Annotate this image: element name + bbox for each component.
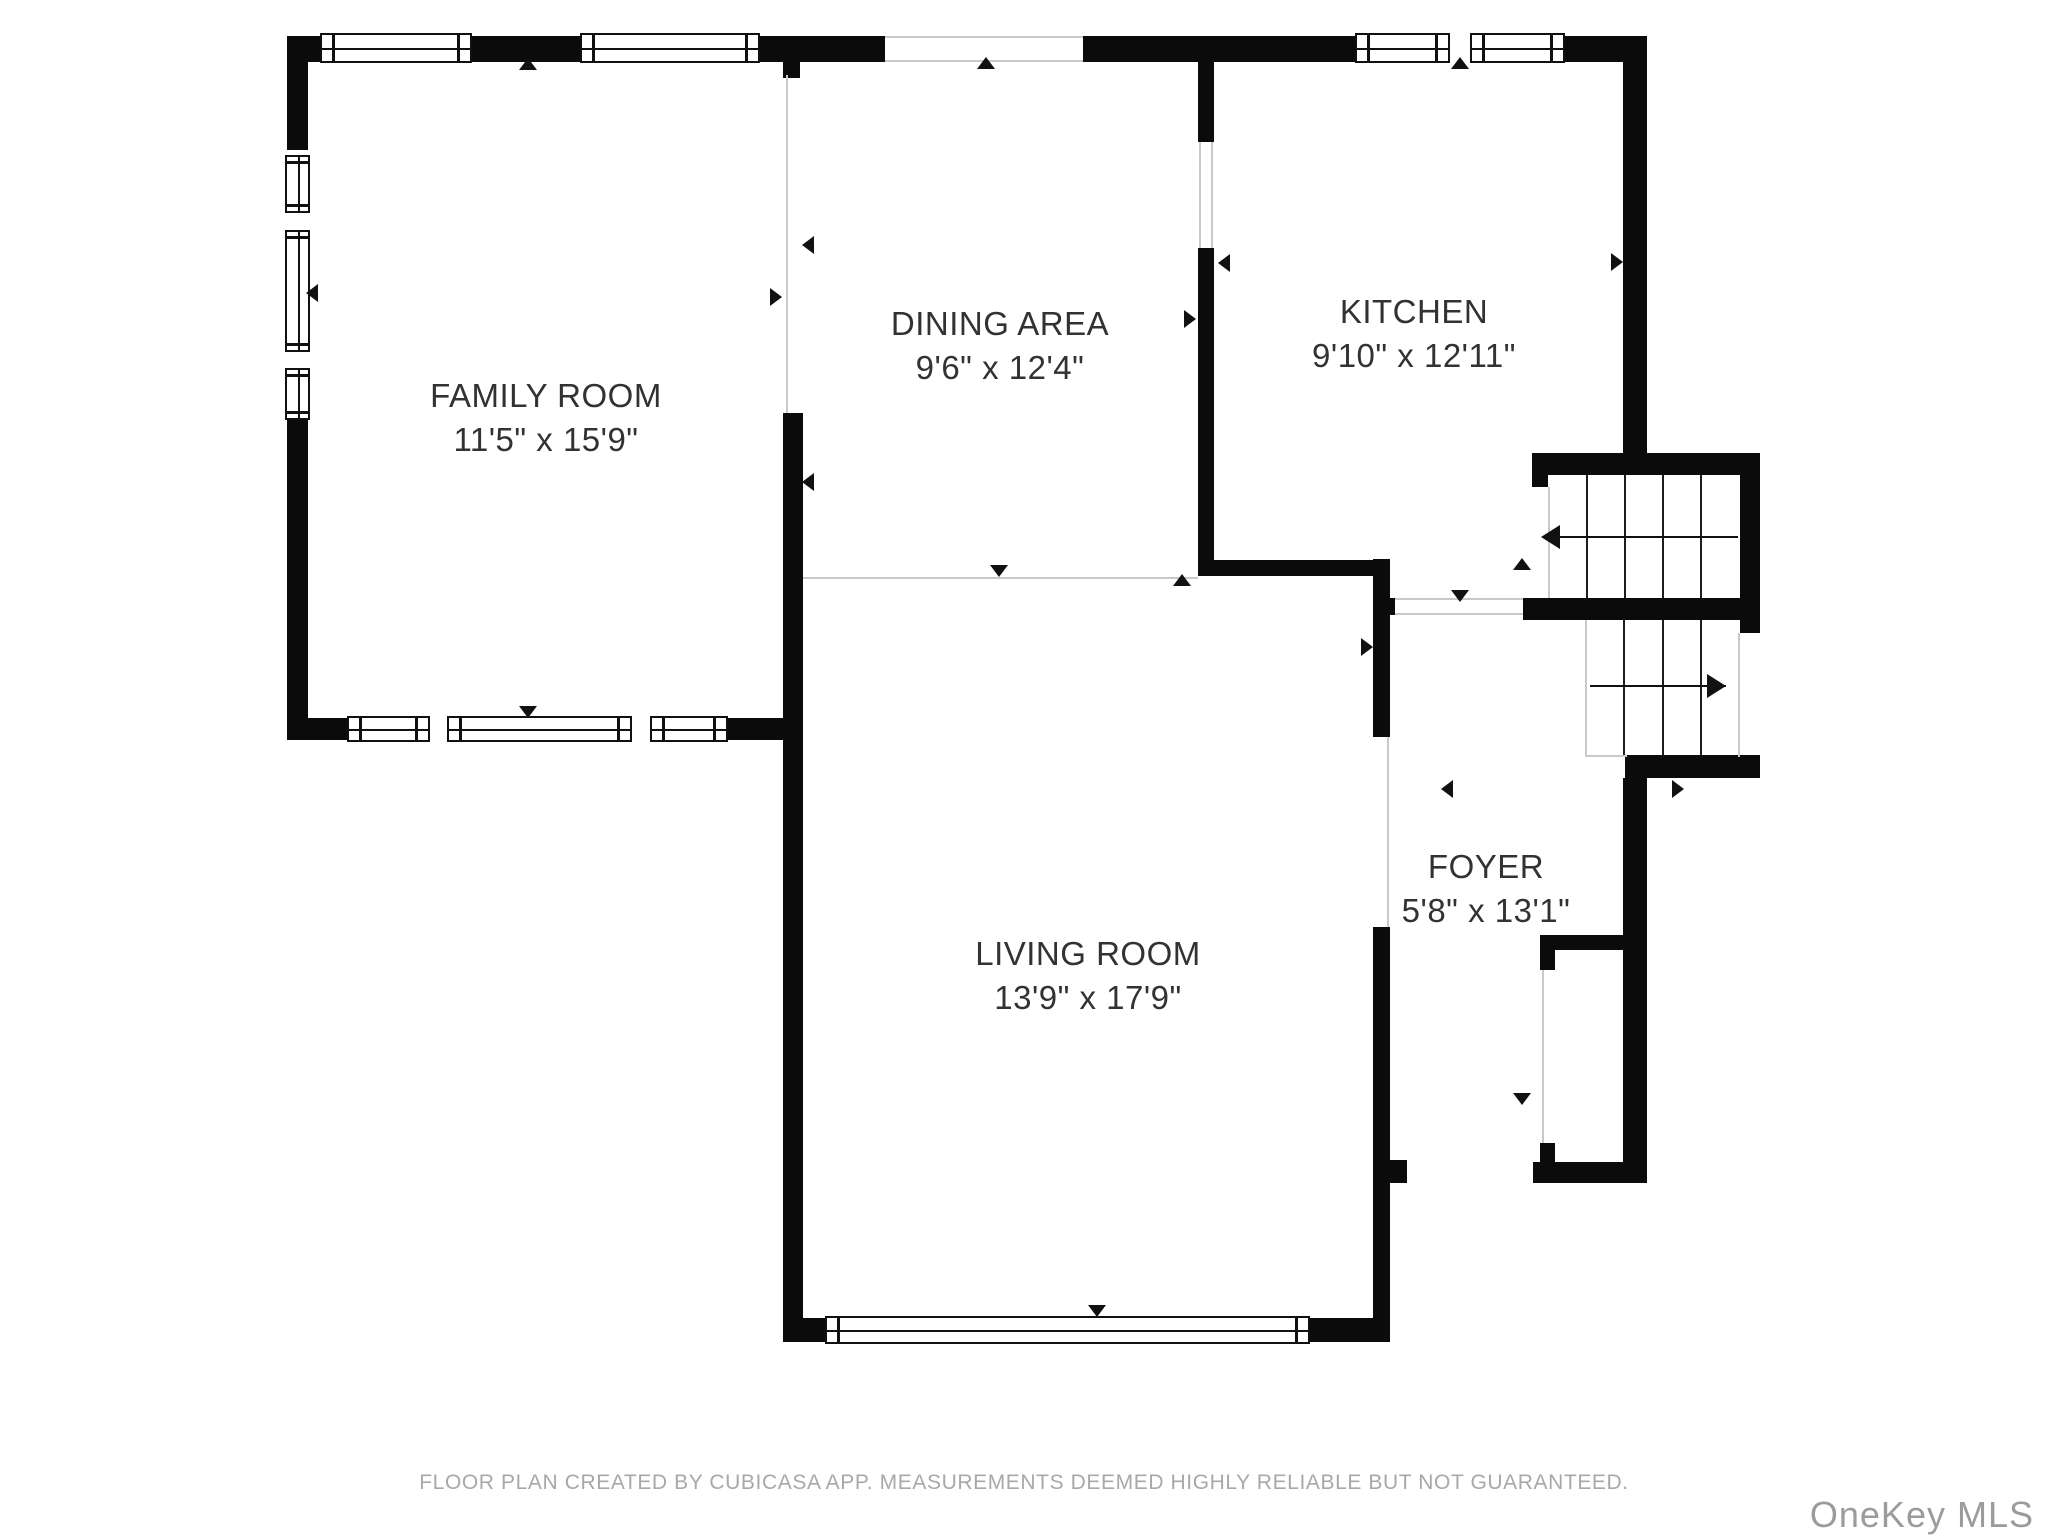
wall-segment (1625, 755, 1760, 778)
opening-marker-left-icon (1441, 780, 1453, 798)
wall-segment (1532, 453, 1760, 475)
window (825, 1316, 1310, 1344)
window (285, 368, 310, 420)
room-label-family-room: FAMILY ROOM (430, 377, 662, 415)
footer-disclaimer: FLOOR PLAN CREATED BY CUBICASA APP. MEAS… (0, 1471, 2048, 1495)
open-boundary-line (803, 577, 1198, 579)
wall-segment (1198, 248, 1214, 560)
opening-marker-left-icon (1218, 254, 1230, 272)
opening-marker-down-icon (1451, 590, 1469, 602)
window-pane-line (322, 48, 470, 50)
wall-segment (1387, 598, 1395, 615)
opening-marker-down-icon (519, 706, 537, 718)
open-boundary-line (1395, 613, 1523, 615)
window-pane-line (298, 232, 300, 350)
room-label-foyer: FOYER (1428, 848, 1544, 886)
opening-marker-right-icon (1672, 780, 1684, 798)
wall-segment (287, 36, 308, 150)
stair-direction-arrow-icon (1707, 674, 1726, 698)
wall-segment (1083, 36, 1355, 62)
wall-segment (1623, 778, 1647, 1183)
wall-segment (1373, 927, 1390, 1342)
opening-marker-up-icon (519, 58, 537, 70)
opening-marker-right-icon (770, 288, 782, 306)
opening-marker-down-icon (1088, 1305, 1106, 1317)
wall-segment (1623, 36, 1647, 453)
open-boundary-line (1387, 737, 1389, 927)
wall-segment (1532, 475, 1548, 487)
open-boundary-line (1199, 142, 1201, 248)
wall-segment (1523, 598, 1740, 620)
wall-segment (1198, 560, 1387, 576)
wall-segment (760, 36, 885, 62)
window-pane-line (349, 729, 428, 731)
floor-plan-page: FAMILY ROOM11'5" x 15'9"DINING AREA9'6" … (0, 0, 2048, 1536)
room-label-dining-area: DINING AREA (891, 305, 1109, 343)
window (347, 716, 430, 742)
stair-tread-line (1700, 620, 1702, 755)
opening-marker-right-icon (1611, 253, 1623, 271)
window (1470, 33, 1565, 63)
wall-segment (1373, 559, 1390, 737)
stair-direction-line (1560, 536, 1738, 538)
wall-segment (1198, 58, 1214, 142)
opening-marker-right-icon (1361, 638, 1373, 656)
wall-segment (1533, 1162, 1647, 1183)
window-pane-line (449, 729, 630, 731)
opening-marker-down-icon (990, 565, 1008, 577)
wall-segment (287, 420, 308, 740)
stair-tread-line (1662, 620, 1664, 755)
window (580, 33, 760, 63)
window-pane-line (827, 1330, 1308, 1332)
stair-direction-line (1590, 685, 1726, 687)
opening-marker-up-icon (1451, 57, 1469, 69)
wall-segment (783, 1318, 825, 1342)
window-pane-line (582, 48, 758, 50)
opening-marker-down-icon (1513, 1093, 1531, 1105)
wall-segment (1740, 453, 1760, 633)
stair-direction-arrow-icon (1541, 525, 1560, 549)
opening-marker-up-icon (1173, 574, 1191, 586)
window-pane-line (1357, 48, 1448, 50)
wall-segment (783, 413, 803, 1342)
open-boundary-line (1585, 755, 1627, 757)
opening-marker-right-icon (1184, 310, 1196, 328)
stair-tread-line (1623, 620, 1625, 755)
window-pane-line (298, 370, 300, 418)
open-boundary-line (1585, 620, 1587, 757)
open-boundary-line (1211, 142, 1213, 248)
window (320, 33, 472, 63)
opening-marker-left-icon (802, 473, 814, 491)
room-dims-family-room: 11'5" x 15'9" (453, 421, 638, 459)
open-boundary-line (786, 75, 788, 413)
wall-segment (1540, 935, 1647, 950)
room-dims-dining-area: 9'6" x 12'4" (916, 349, 1085, 387)
watermark-onekey-mls: OneKey MLS (1810, 1494, 2034, 1536)
window (285, 155, 310, 213)
room-label-kitchen: KITCHEN (1340, 293, 1488, 331)
room-dims-kitchen: 9'10" x 12'11" (1312, 337, 1516, 375)
open-boundary-line (1542, 970, 1544, 1143)
opening-marker-left-icon (306, 284, 318, 302)
window-pane-line (298, 157, 300, 211)
open-boundary-line (1738, 633, 1740, 757)
window-pane-line (1472, 48, 1563, 50)
wall-segment (287, 718, 347, 740)
open-boundary-line (885, 36, 1083, 38)
window (447, 716, 632, 742)
room-label-living-room: LIVING ROOM (975, 935, 1201, 973)
opening-marker-up-icon (977, 57, 995, 69)
opening-marker-up-icon (1513, 558, 1531, 570)
window (650, 716, 728, 742)
window-pane-line (652, 729, 726, 731)
wall-segment (1390, 1160, 1407, 1183)
opening-marker-left-icon (802, 236, 814, 254)
wall-segment (1540, 1143, 1555, 1162)
room-dims-foyer: 5'8" x 13'1" (1402, 892, 1571, 930)
wall-segment (1540, 950, 1555, 970)
room-dims-living-room: 13'9" x 17'9" (994, 979, 1181, 1017)
window (1355, 33, 1450, 63)
